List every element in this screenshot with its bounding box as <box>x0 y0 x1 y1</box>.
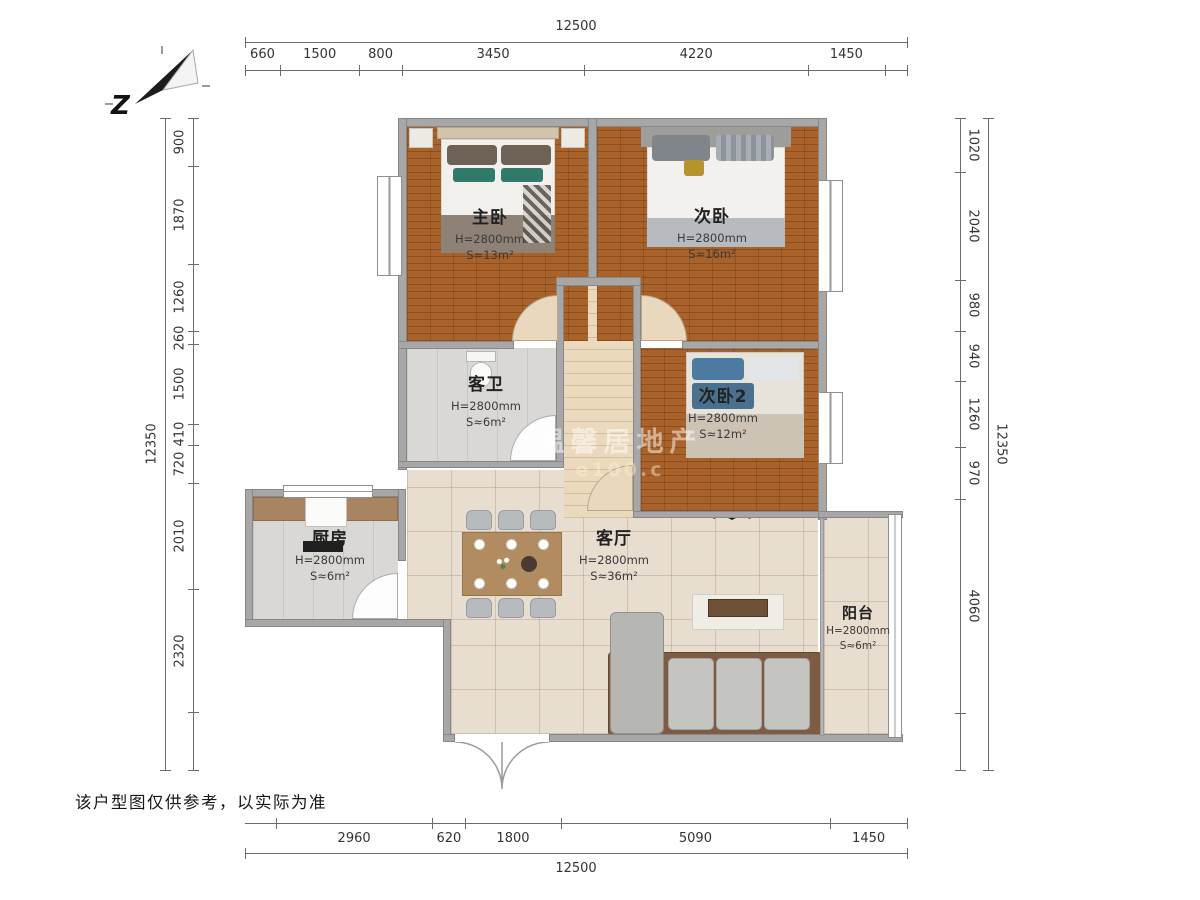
dim-tick <box>955 499 966 500</box>
dim-tick <box>188 770 199 771</box>
dim-total-label: 12350 <box>145 423 160 464</box>
dim-tick <box>402 65 403 76</box>
dim-label: 5090 <box>679 831 712 846</box>
dim-tick <box>955 770 966 771</box>
dim-tick <box>465 818 466 829</box>
dimension-annotations: 6601500800345042201450125002960620180050… <box>0 0 1200 900</box>
dim-tick <box>280 65 281 76</box>
dim-right-total-line <box>988 118 989 770</box>
dim-label: 1500 <box>303 47 336 62</box>
dim-tick <box>432 818 433 829</box>
dim-tick <box>160 118 171 119</box>
dim-label: 410 <box>173 422 188 447</box>
dim-label: 2010 <box>173 520 188 553</box>
dim-label: 1870 <box>173 198 188 231</box>
dim-tick <box>955 280 966 281</box>
dim-tick <box>983 770 994 771</box>
dim-tick <box>983 118 994 119</box>
dim-tick <box>245 65 246 76</box>
dim-tick <box>245 848 246 859</box>
dim-tick <box>188 264 199 265</box>
dim-label: 1450 <box>830 47 863 62</box>
dim-tick <box>584 65 585 76</box>
dim-tick <box>188 483 199 484</box>
dim-tick <box>188 589 199 590</box>
dim-label: 1260 <box>173 281 188 314</box>
dim-tick <box>188 424 199 425</box>
dim-right-segment-line <box>960 118 961 770</box>
dim-tick <box>188 445 199 446</box>
dim-label: 2320 <box>173 634 188 667</box>
dim-top-total-line <box>245 42 907 43</box>
dim-label: 660 <box>250 47 275 62</box>
dim-tick <box>955 381 966 382</box>
dim-left-total-line <box>165 118 166 770</box>
floorplan-canvas: 温馨居地产 e100.c 主卧 H=2800mm S≈13m² 次卧 H=280… <box>0 0 1200 900</box>
dim-total-label: 12500 <box>555 861 596 876</box>
dim-tick <box>188 331 199 332</box>
dim-label: 4220 <box>680 47 713 62</box>
dim-label: 800 <box>368 47 393 62</box>
dim-label: 940 <box>966 344 981 369</box>
dim-total-label: 12500 <box>555 19 596 34</box>
dim-tick <box>955 713 966 714</box>
dim-tick <box>561 818 562 829</box>
dim-bottom-total-line <box>245 853 907 854</box>
dim-tick <box>955 118 966 119</box>
dim-tick <box>808 65 809 76</box>
dim-tick <box>188 344 199 345</box>
dim-label: 1800 <box>496 831 529 846</box>
dim-label: 2040 <box>966 209 981 242</box>
dim-tick <box>955 172 966 173</box>
dim-tick <box>188 118 199 119</box>
dim-label: 720 <box>173 452 188 477</box>
dim-tick <box>359 65 360 76</box>
dim-tick <box>188 712 199 713</box>
dim-label: 1500 <box>173 368 188 401</box>
dim-label: 4060 <box>966 589 981 622</box>
dim-tick <box>160 770 171 771</box>
dim-label: 970 <box>966 461 981 486</box>
dim-label: 620 <box>436 831 461 846</box>
dim-label: 980 <box>966 293 981 318</box>
dim-label: 1020 <box>966 128 981 161</box>
dim-tick <box>907 37 908 48</box>
dim-left-segment-line <box>193 118 194 770</box>
dim-tick <box>907 848 908 859</box>
dim-tick <box>907 65 908 76</box>
dim-total-label: 12350 <box>994 423 1009 464</box>
dim-label: 3450 <box>477 47 510 62</box>
dim-label: 900 <box>173 129 188 154</box>
dim-tick <box>907 818 908 829</box>
dim-label: 2960 <box>338 831 371 846</box>
dim-bottom-segment-line <box>245 823 907 824</box>
dim-tick <box>885 65 886 76</box>
dim-label: 1450 <box>852 831 885 846</box>
dim-label: 1260 <box>966 398 981 431</box>
dim-tick <box>276 818 277 829</box>
dim-tick <box>188 166 199 167</box>
dim-tick <box>245 37 246 48</box>
dim-label: 260 <box>173 325 188 350</box>
dim-tick <box>955 447 966 448</box>
dim-tick <box>955 331 966 332</box>
dim-tick <box>830 818 831 829</box>
